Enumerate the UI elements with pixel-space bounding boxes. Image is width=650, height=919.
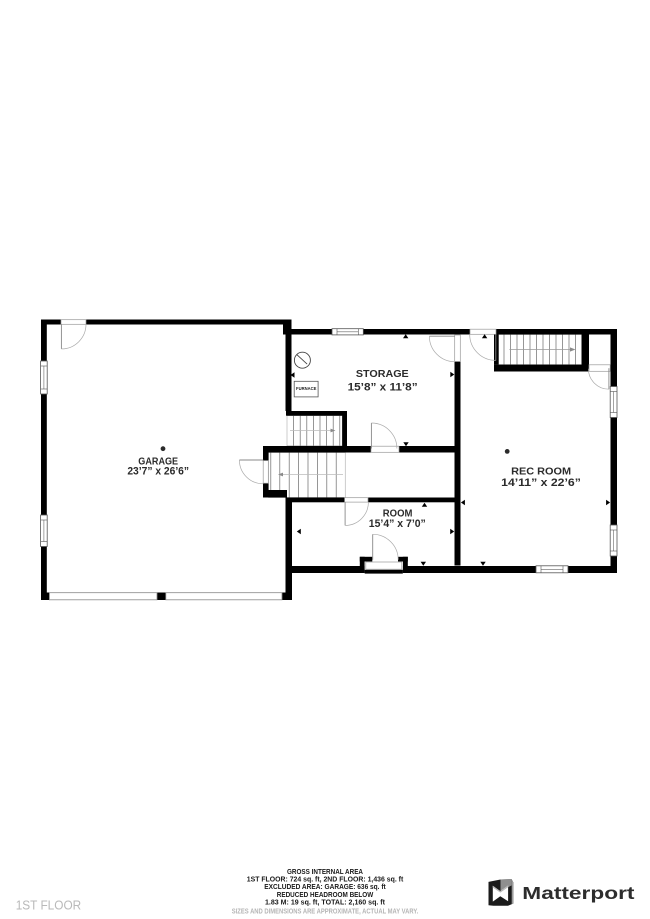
svg-text:Matterport: Matterport: [522, 883, 634, 903]
svg-text:1ST FLOOR: 1ST FLOOR: [16, 898, 82, 913]
svg-text:15’4” x 7’0”: 15’4” x 7’0”: [369, 518, 426, 530]
svg-text:1.83 M: 19 sq. ft, TOTAL: 2,16: 1.83 M: 19 sq. ft, TOTAL: 2,160 sq. ft: [265, 898, 385, 907]
svg-text:23’7” x 26’6”: 23’7” x 26’6”: [127, 466, 189, 478]
svg-text:STORAGE: STORAGE: [356, 369, 409, 380]
svg-text:SIZES AND DIMENSIONS ARE APPRO: SIZES AND DIMENSIONS ARE APPROXIMATE, AC…: [232, 906, 419, 915]
svg-text:FURNACE: FURNACE: [296, 386, 316, 391]
svg-text:15’8” x 11’8”: 15’8” x 11’8”: [348, 382, 418, 394]
svg-text:14’11” x 22’6”: 14’11” x 22’6”: [501, 477, 581, 489]
